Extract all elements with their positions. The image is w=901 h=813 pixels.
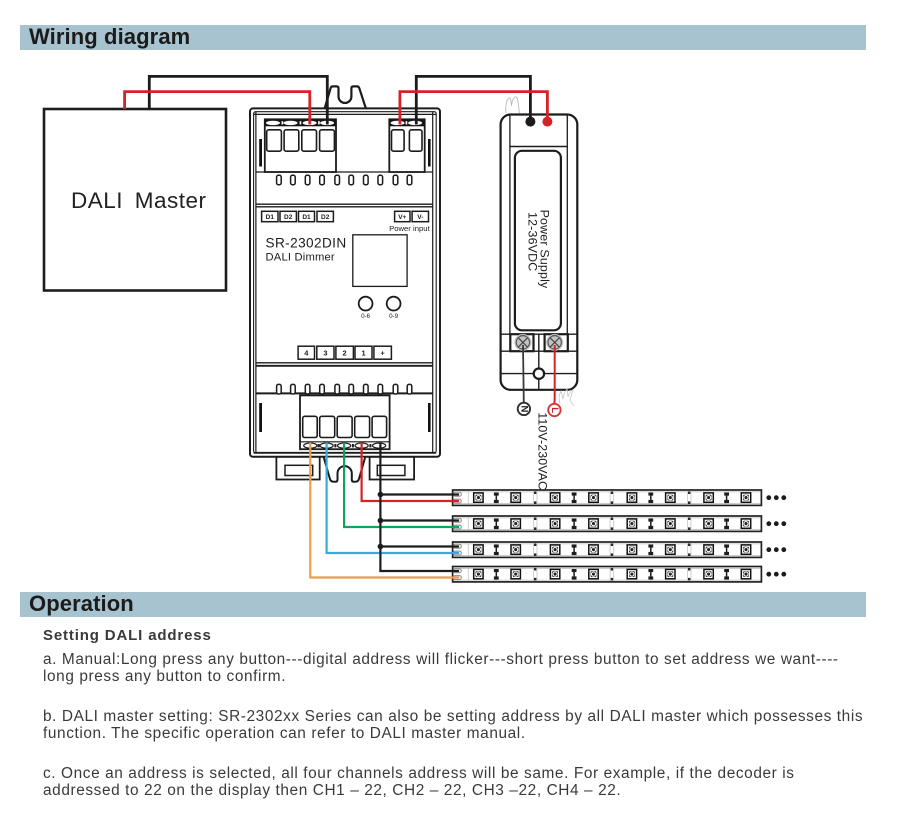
svg-text:Power input: Power input xyxy=(389,224,430,233)
svg-text:D2: D2 xyxy=(321,214,330,221)
svg-text:0-6: 0-6 xyxy=(361,313,371,320)
svg-text:DALI Dimmer: DALI Dimmer xyxy=(266,252,335,264)
svg-text:V+: V+ xyxy=(398,214,406,221)
svg-text:N: N xyxy=(518,406,529,413)
svg-text:+: + xyxy=(380,349,385,358)
svg-text:V-: V- xyxy=(417,214,423,221)
svg-text:D2: D2 xyxy=(284,214,293,221)
svg-text:D1: D1 xyxy=(266,214,275,221)
svg-text:2: 2 xyxy=(343,349,347,358)
svg-text:D1: D1 xyxy=(302,214,311,221)
svg-text:1: 1 xyxy=(361,349,365,358)
svg-text:0-9: 0-9 xyxy=(389,313,399,320)
svg-text:SR-2302DIN: SR-2302DIN xyxy=(266,236,347,251)
svg-text:110V-230VAC: 110V-230VAC xyxy=(536,412,550,490)
svg-text:12-36VDC: 12-36VDC xyxy=(525,212,539,271)
svg-text:DALI Master: DALI Master xyxy=(71,188,207,213)
svg-text:3: 3 xyxy=(323,349,327,358)
